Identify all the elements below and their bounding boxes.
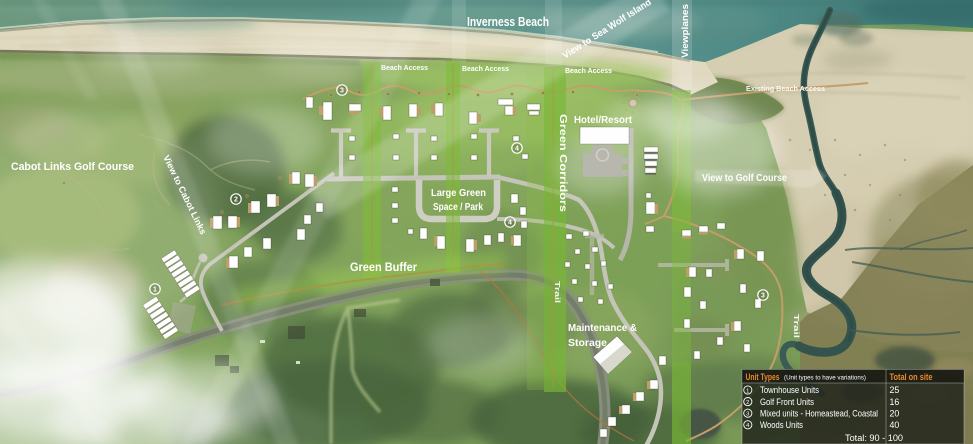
- svg-text:Total on site: Total on site: [890, 372, 933, 382]
- svg-text:Townhouse Units: Townhouse Units: [760, 385, 820, 395]
- svg-text:Green Buffer: Green Buffer: [350, 262, 417, 274]
- svg-text:Beach Access: Beach Access: [462, 64, 509, 73]
- svg-text:View to Golf Course: View to Golf Course: [702, 173, 787, 184]
- svg-text:Existing Beach Access: Existing Beach Access: [746, 84, 825, 93]
- svg-text:Maintenance &: Maintenance &: [568, 322, 637, 334]
- svg-text:Storage: Storage: [568, 337, 607, 349]
- svg-text:Unit Types: Unit Types: [746, 372, 780, 382]
- svg-text:Inverness Beach: Inverness Beach: [467, 15, 549, 29]
- svg-text:Large Green: Large Green: [431, 188, 486, 199]
- svg-text:Green Corridors: Green Corridors: [557, 114, 568, 212]
- svg-text:(Unit types to have variations: (Unit types to have variations): [784, 375, 866, 382]
- svg-text:Mixed units - Homeastead, Coas: Mixed units - Homeastead, Coastal: [760, 408, 878, 418]
- svg-text:Woods Units: Woods Units: [760, 420, 804, 430]
- svg-text:20: 20: [890, 408, 900, 418]
- svg-text:3: 3: [746, 412, 749, 418]
- svg-text:4: 4: [515, 146, 519, 153]
- svg-text:4: 4: [508, 220, 512, 227]
- svg-text:40: 40: [890, 420, 900, 430]
- svg-text:1: 1: [153, 287, 157, 294]
- svg-text:3: 3: [340, 88, 344, 95]
- svg-text:Total: 90 - 100: Total: 90 - 100: [845, 433, 903, 443]
- svg-text:2: 2: [234, 197, 238, 204]
- svg-text:25: 25: [890, 385, 900, 395]
- svg-text:2: 2: [746, 400, 749, 406]
- svg-text:Beach Access: Beach Access: [381, 63, 428, 72]
- svg-text:Beach Access: Beach Access: [565, 66, 612, 75]
- svg-text:Cabot Links Golf Course: Cabot Links Golf Course: [11, 161, 134, 173]
- svg-text:Viewplanes: Viewplanes: [680, 4, 691, 58]
- svg-text:Trail: Trail: [553, 281, 562, 303]
- svg-text:Hotel/Resort: Hotel/Resort: [574, 114, 632, 126]
- svg-text:Golf Front Units: Golf Front Units: [760, 397, 815, 407]
- svg-text:Trail: Trail: [792, 314, 801, 338]
- svg-text:Space / Park: Space / Park: [433, 202, 483, 213]
- svg-text:3: 3: [761, 293, 765, 300]
- svg-text:16: 16: [890, 397, 900, 407]
- svg-text:1: 1: [746, 388, 749, 394]
